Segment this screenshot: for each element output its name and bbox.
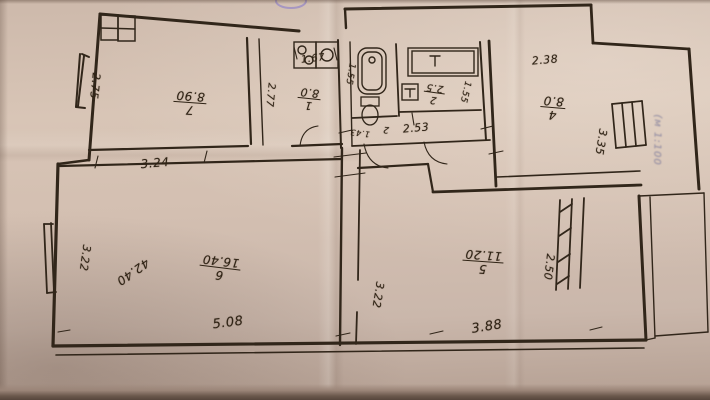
wash-sink — [402, 84, 418, 100]
dim-wc-mark: 2 — [382, 124, 389, 135]
dim-room4-width: 2.38 — [531, 52, 559, 67]
dimension-ticks — [58, 47, 602, 336]
room-7-area: 8.90 — [174, 89, 208, 105]
bathtub — [358, 48, 386, 94]
room-5-label: 5 11.20 — [462, 248, 505, 277]
window-room4 — [612, 101, 646, 148]
room-5-area: 11.20 — [463, 248, 505, 264]
room-4-number: 4 — [544, 108, 561, 122]
dim-hall-width: 3.24 — [140, 155, 170, 171]
room-2-label: 2 2.5 — [422, 81, 446, 106]
paper-edge-shadow — [0, 384, 710, 400]
room-1-number: 1 — [300, 99, 317, 112]
balcony-window — [556, 198, 584, 290]
room-7-label: 7 8.90 — [173, 89, 207, 117]
room-5-number: 5 — [474, 262, 491, 276]
room-7-number: 7 — [181, 103, 198, 117]
toilet — [361, 97, 379, 125]
dim-room7-left: 2.75 — [87, 72, 103, 100]
room-4-label: 4 8.0 — [540, 94, 567, 122]
window-room7 — [76, 54, 89, 108]
scale-annotation: (м 1:100 — [651, 114, 663, 166]
photo-edge — [0, 0, 8, 400]
room-1-area: 8.0 — [298, 86, 322, 101]
dim-san-block-width: 2.53 — [402, 120, 430, 135]
vent-shaft — [101, 15, 135, 41]
bath-cabinet — [408, 48, 478, 76]
floor-plan-photo: 2.75 7 8.90 3.24 1.67 2.77 1 8.0 1.55 1.… — [0, 0, 710, 400]
room-1-label: 1 8.0 — [296, 86, 321, 112]
room-6-label: 6 16.40 — [198, 253, 242, 284]
photo-edge — [0, 0, 710, 4]
room-6-number: 6 — [210, 268, 228, 282]
balcony — [639, 193, 708, 340]
room-4-area: 8.0 — [541, 94, 567, 110]
plan-drawing — [0, 0, 710, 400]
